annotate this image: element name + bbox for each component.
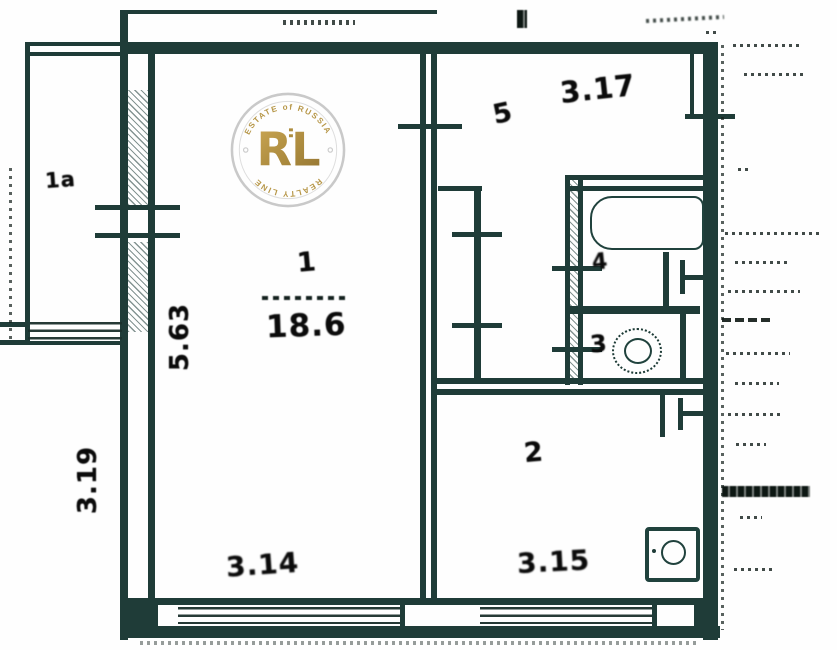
wall-bottom-right-pier xyxy=(694,598,718,638)
bath-wall-top-b xyxy=(565,186,705,191)
scan-noise-dark-stamp xyxy=(722,486,810,497)
wall-room1-right-b xyxy=(431,54,437,602)
wall-left-hatch-upper xyxy=(128,90,148,205)
balcony-wall-top-b xyxy=(25,52,122,56)
scan-noise-r2 xyxy=(744,73,806,76)
scan-noise-top-cursive xyxy=(646,15,724,23)
scan-noise-top-mark xyxy=(517,10,527,28)
toilet-bowl-inner xyxy=(624,338,652,364)
room1-number: 1 xyxy=(296,246,318,279)
window-pier-divider-left xyxy=(400,602,405,628)
wall-top-main xyxy=(120,42,718,54)
realty-line-watermark: ESTATE of RUSSIA REALTY LINE RL xyxy=(229,91,347,209)
dim-outer-left: 3.19 xyxy=(73,435,103,525)
room1-area: 18.6 xyxy=(265,307,347,346)
wall-right-outer xyxy=(703,42,718,640)
wall-corridor-bottom-b xyxy=(437,389,706,395)
watermark-left-dot xyxy=(244,148,248,152)
balcony-edge-ext-a xyxy=(0,322,30,327)
wall-bottom-inner xyxy=(152,598,706,605)
closet-door-tick-b xyxy=(452,323,502,328)
bath-wall-top-a xyxy=(565,175,718,180)
wall-topright-shaft xyxy=(690,54,694,116)
wall-top-thin-edge xyxy=(122,10,437,14)
room4-number: 4 xyxy=(591,249,610,276)
scan-noise-r6 xyxy=(728,290,800,293)
dim-bottom-right: 3.15 xyxy=(516,543,591,580)
scan-noise-r13 xyxy=(734,568,776,571)
stove-dot xyxy=(652,549,656,553)
bath-niche-partition xyxy=(663,252,669,310)
scan-noise-top-note xyxy=(283,20,355,25)
room1-door-tick xyxy=(398,124,462,129)
balcony-door-tick-b xyxy=(95,233,180,238)
bath-wall-left-b xyxy=(578,175,583,385)
wall-left-hatch-lower xyxy=(128,242,148,332)
scan-noise-right-edge xyxy=(721,45,724,630)
bath-toilet-divider xyxy=(565,306,700,314)
bathtub xyxy=(590,196,704,250)
wall-bottom-left-pier xyxy=(120,598,158,638)
scan-noise-r8 xyxy=(726,352,790,355)
dim-wall-left: 5.63 xyxy=(165,292,195,382)
watermark-bottom-arc-text: REALTY LINE xyxy=(252,177,324,199)
watermark-right-dot xyxy=(328,148,332,152)
balcony-wall-bottom xyxy=(25,341,122,345)
window-pier-divider-right xyxy=(652,602,657,628)
wall-room1-right-a xyxy=(420,54,426,602)
wall-bottom-outer xyxy=(120,626,720,638)
scan-noise-r7 xyxy=(722,318,772,322)
watermark-mark-a xyxy=(289,128,293,131)
kitchen-sink-stem xyxy=(683,411,707,416)
scan-noise-r11 xyxy=(736,443,766,446)
room5-number: 5 xyxy=(490,96,516,130)
watermark-monogram: RL xyxy=(256,123,320,177)
balcony-wall-left xyxy=(25,42,30,345)
window-bottom-right xyxy=(480,607,652,624)
balcony-door-tick-a xyxy=(95,205,180,210)
room3-number: 3 xyxy=(589,329,609,358)
dim-top-right: 3.17 xyxy=(558,68,637,110)
scan-noise-r10 xyxy=(728,413,784,416)
kitchen-sink-partition xyxy=(660,395,665,437)
balcony-wall-top-a xyxy=(25,42,122,46)
room2-number: 2 xyxy=(523,436,545,469)
window-tick-top-right xyxy=(685,114,735,119)
dim-bottom-left: 3.14 xyxy=(225,545,300,583)
stove-burner-circle xyxy=(661,540,686,565)
closet-door-tick-a xyxy=(452,232,502,237)
balcony-window-sill xyxy=(28,322,122,341)
scan-noise-r9 xyxy=(735,382,779,385)
scan-noise-r1 xyxy=(733,44,803,47)
wall-left-inner xyxy=(148,42,155,602)
scan-noise-top-dash xyxy=(706,31,718,34)
toilet-wall-right xyxy=(680,314,686,382)
scan-noise-r4 xyxy=(725,232,820,235)
room1-divider-scribble xyxy=(262,296,350,300)
scan-noise-r5 xyxy=(735,261,790,264)
balcony-label: 1a xyxy=(44,167,76,193)
watermark-mark-b xyxy=(289,134,293,137)
scan-noise-r3 xyxy=(738,168,752,171)
scan-noise-bottom-edge xyxy=(140,641,700,645)
bath-sink-stem xyxy=(685,275,709,280)
floor-plan-scan: 1a 1 18.6 5 3.17 4 3 2 5.63 3.19 3.14 3.… xyxy=(0,0,837,650)
balcony-edge-ext-b xyxy=(0,340,30,345)
scan-noise-r12 xyxy=(740,516,762,519)
closet-wall-right xyxy=(474,186,481,382)
window-bottom-left xyxy=(178,607,400,624)
scan-noise-left-edge xyxy=(9,168,12,343)
